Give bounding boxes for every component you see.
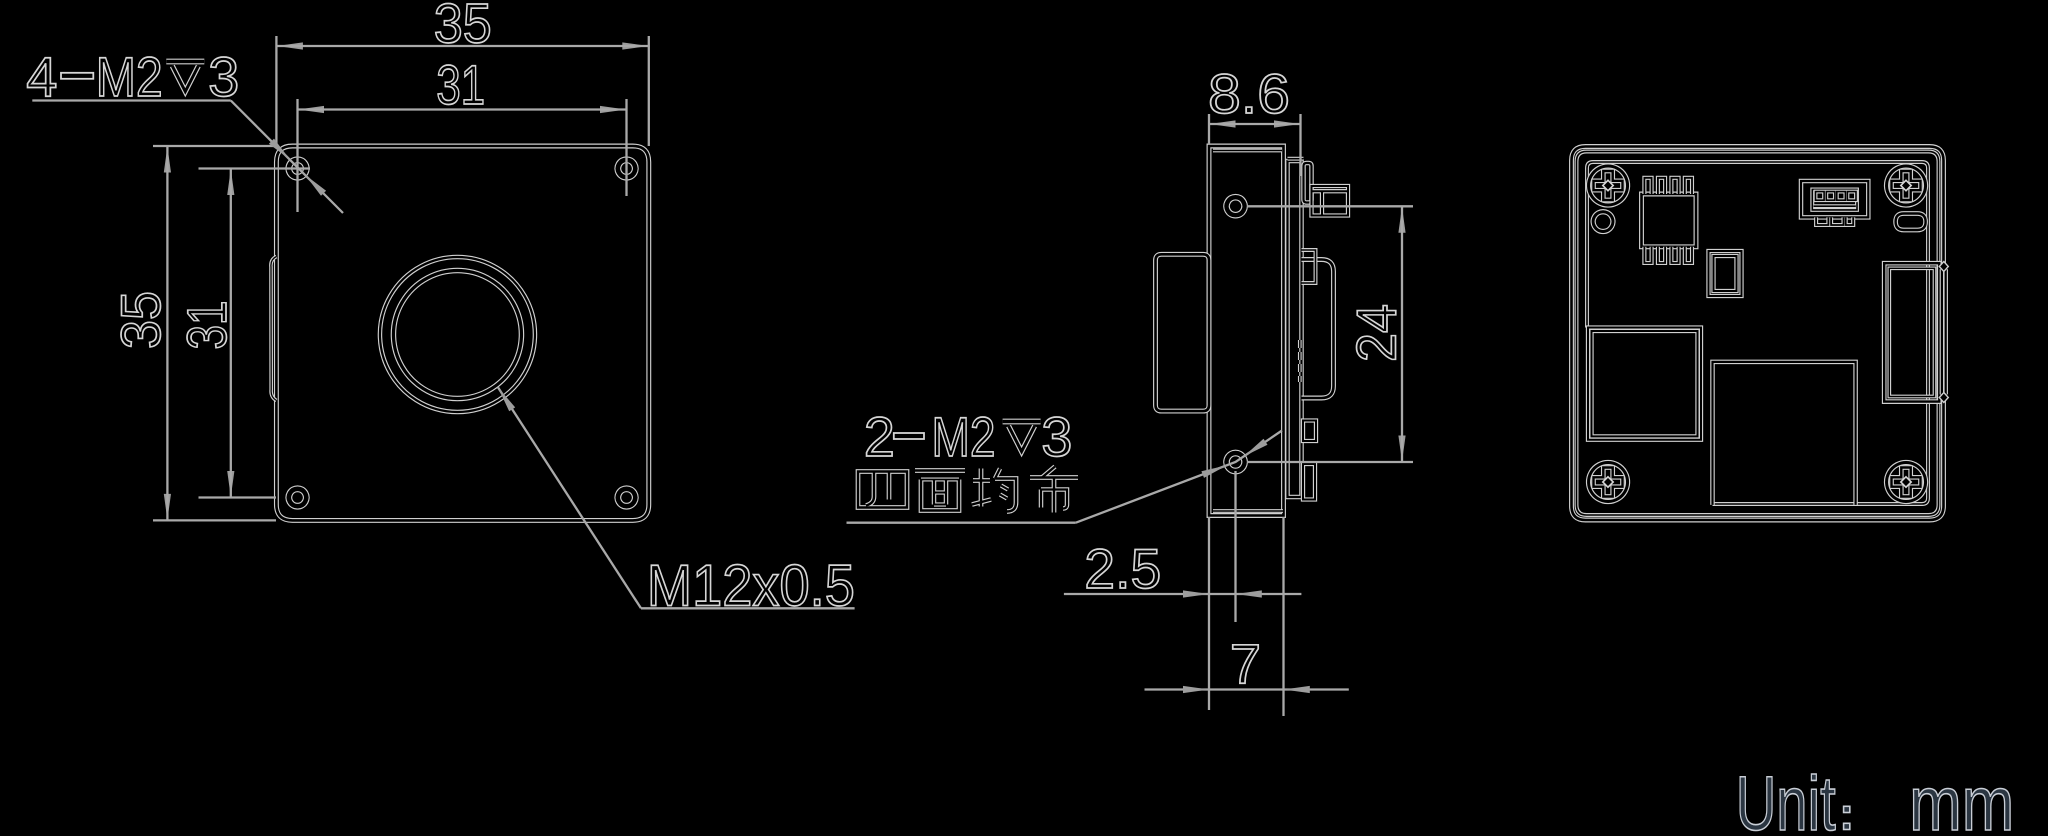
svg-text:24: 24 — [1345, 304, 1408, 362]
svg-text:35: 35 — [434, 0, 492, 55]
svg-text:2: 2 — [864, 405, 895, 468]
svg-text:mm: mm — [1909, 761, 2014, 836]
svg-text:35: 35 — [109, 291, 172, 349]
svg-text:7: 7 — [1230, 632, 1261, 695]
svg-text:31: 31 — [175, 301, 238, 350]
svg-text:8.6: 8.6 — [1208, 62, 1290, 125]
svg-text:4: 4 — [26, 45, 57, 108]
svg-text:Unit: Unit — [1736, 761, 1836, 836]
svg-text:3: 3 — [1041, 405, 1072, 468]
svg-text:2.5: 2.5 — [1084, 537, 1161, 600]
svg-text:3: 3 — [208, 45, 239, 108]
svg-text:M2: M2 — [96, 45, 163, 108]
svg-text:M2: M2 — [932, 405, 996, 468]
svg-text:31: 31 — [436, 53, 485, 116]
